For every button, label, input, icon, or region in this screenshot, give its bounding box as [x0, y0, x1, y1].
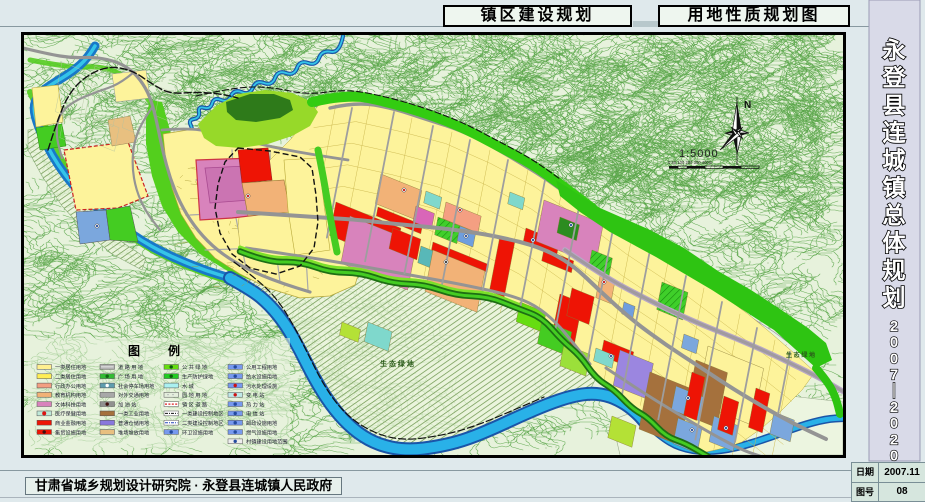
- svg-text:电 信 站: 电 信 站: [246, 410, 264, 418]
- svg-text:体: 体: [883, 230, 907, 256]
- svg-text:医疗保健用地: 医疗保健用地: [55, 410, 86, 418]
- svg-text:连: 连: [883, 120, 907, 146]
- svg-text:文体科技用地: 文体科技用地: [55, 400, 86, 408]
- svg-text:行政办公用地: 行政办公用地: [55, 382, 86, 390]
- svg-text:热 力 站: 热 力 站: [246, 400, 264, 408]
- svg-text:堆场堆放用地: 堆场堆放用地: [118, 428, 149, 436]
- svg-text:二类建设控制地区: 二类建设控制地区: [182, 419, 224, 427]
- svg-text:0: 0: [890, 334, 898, 351]
- svg-text:变 电 站: 变 电 站: [246, 391, 264, 399]
- svg-text:燃气设施用地: 燃气设施用地: [246, 428, 277, 436]
- svg-text:社会停车场用地: 社会停车场用地: [118, 382, 154, 390]
- svg-text:加 油 站: 加 油 站: [118, 400, 136, 408]
- svg-text:N: N: [744, 100, 751, 111]
- svg-text:登: 登: [882, 65, 907, 91]
- svg-text:｜: ｜: [886, 382, 901, 400]
- svg-text:生 态 绿 地: 生 态 绿 地: [380, 359, 414, 368]
- svg-text:集贸设施用地: 集贸设施用地: [55, 428, 86, 436]
- svg-text:二类居住用地: 二类居住用地: [55, 373, 86, 381]
- svg-text:图 例: 图 例: [128, 343, 188, 358]
- svg-text:县: 县: [883, 92, 906, 118]
- svg-text:对外交通用地: 对外交通用地: [118, 391, 149, 399]
- svg-text:1:5000: 1:5000: [679, 148, 719, 160]
- svg-text:2: 2: [890, 431, 898, 448]
- svg-text:总: 总: [883, 202, 906, 228]
- svg-text:2: 2: [890, 399, 898, 416]
- svg-text:水 域: 水 域: [182, 382, 194, 390]
- svg-text:0 50 100 200 300: 0 50 100 200 300 400m: [668, 160, 713, 165]
- svg-text:镇 区 道 路: 镇 区 道 路: [182, 400, 208, 408]
- svg-text:永: 永: [883, 37, 906, 63]
- svg-text:0: 0: [890, 415, 898, 432]
- svg-text:一类工业用地: 一类工业用地: [118, 410, 149, 418]
- svg-text:普通仓储用地: 普通仓储用地: [118, 419, 149, 427]
- svg-text:划: 划: [883, 285, 906, 311]
- svg-text:2: 2: [890, 318, 898, 335]
- svg-text:商业金融用地: 商业金融用地: [55, 419, 86, 427]
- svg-text:镇: 镇: [883, 175, 906, 201]
- svg-text:城: 城: [883, 147, 906, 173]
- svg-text:教育机构用地: 教育机构用地: [55, 391, 86, 399]
- svg-text:0: 0: [890, 350, 898, 367]
- svg-text:7: 7: [890, 367, 898, 384]
- svg-text:园 地 用 地: 园 地 用 地: [182, 391, 207, 399]
- svg-text:生产防护绿地: 生产防护绿地: [182, 373, 213, 381]
- svg-text:污水处理设施: 污水处理设施: [246, 382, 277, 390]
- svg-text:邮政设施用地: 邮政设施用地: [246, 419, 277, 427]
- svg-text:广 场 用 地: 广 场 用 地: [118, 373, 143, 381]
- svg-text:一类居住用地: 一类居住用地: [55, 363, 86, 371]
- svg-text:村镇建设用地范围: 村镇建设用地范围: [246, 438, 288, 446]
- svg-text:环卫设施用地: 环卫设施用地: [182, 428, 213, 436]
- svg-text:公 共 绿 地: 公 共 绿 地: [182, 363, 207, 371]
- svg-text:生 态 绿 地: 生 态 绿 地: [786, 351, 815, 359]
- svg-text:一类建设控制地区: 一类建设控制地区: [182, 410, 224, 418]
- svg-text:道 路 用 地: 道 路 用 地: [118, 363, 143, 371]
- svg-text:给水设施用地: 给水设施用地: [246, 373, 277, 381]
- svg-text:公用工程用地: 公用工程用地: [246, 363, 277, 371]
- svg-text:规: 规: [883, 257, 906, 283]
